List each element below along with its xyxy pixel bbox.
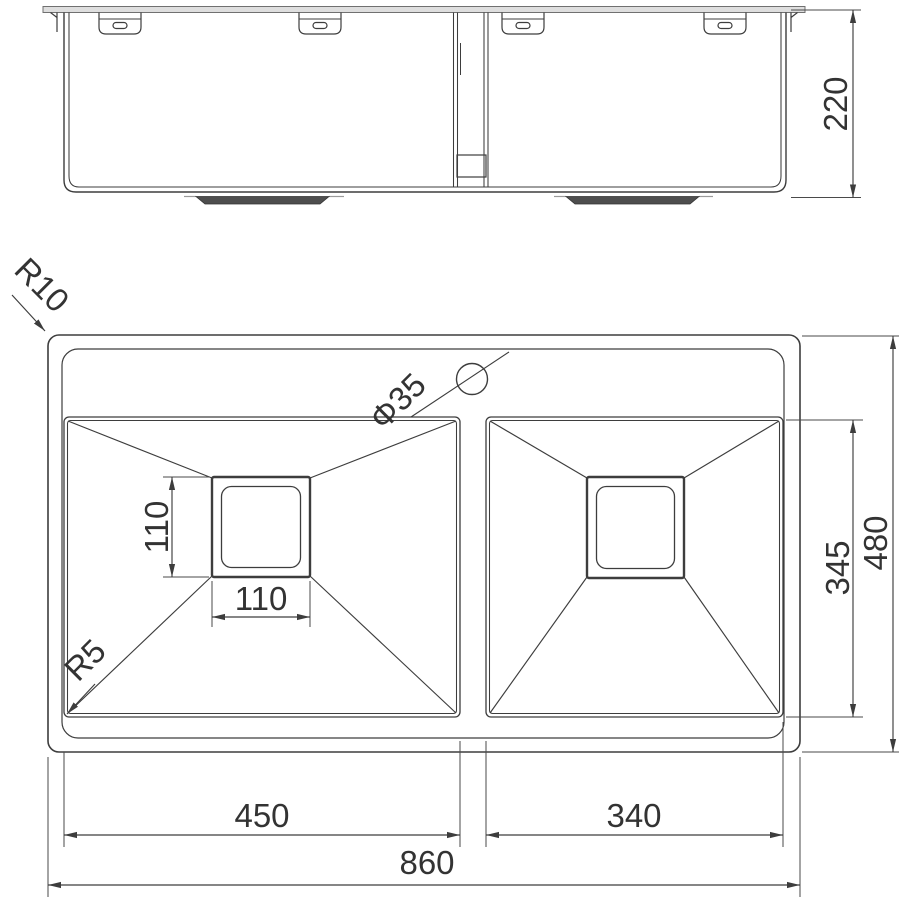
dim-label-220: 220 — [817, 76, 854, 131]
dim-label-450: 450 — [234, 797, 289, 834]
right-drain-boss — [554, 197, 713, 205]
sink-body-inner-wall — [69, 13, 781, 188]
plan-view: Φ35 R10 R5 110 110 — [8, 250, 899, 897]
dim-label-345: 345 — [819, 540, 856, 595]
dimension-depth-220: 220 — [791, 10, 861, 198]
left-drain-square — [212, 477, 310, 577]
left-drain-boss — [184, 197, 344, 205]
mounting-clip-3 — [502, 13, 544, 35]
bowl-divider — [454, 13, 489, 188]
mounting-clip-4 — [704, 13, 746, 35]
callout-outer-radius: R10 — [8, 250, 77, 331]
dimension-right-bowl-340: 340 — [486, 722, 783, 847]
left-rim-hook — [51, 13, 58, 33]
tap-hole: Φ35 — [362, 352, 509, 437]
label-outer-radius: R10 — [8, 250, 77, 319]
sink-body-outer-wall — [64, 13, 786, 193]
mounting-clip-1 — [99, 13, 141, 35]
dimension-drain-height-110: 110 — [138, 477, 209, 577]
dim-label-340: 340 — [606, 797, 661, 834]
right-drain-square — [587, 477, 684, 578]
dimension-overall-width-860: 860 — [48, 757, 800, 897]
right-bowl — [486, 417, 783, 717]
tap-hole-circle — [457, 364, 488, 395]
dim-label-110-h: 110 — [235, 580, 288, 617]
dimension-drain-width-110: 110 — [212, 580, 310, 627]
dim-label-860: 860 — [399, 844, 454, 881]
dim-label-110-v: 110 — [138, 501, 175, 554]
mounting-clip-2 — [299, 13, 341, 35]
dimension-left-bowl-450: 450 — [64, 741, 460, 847]
left-bowl — [64, 417, 460, 717]
technical-drawing-sheet: 220 — [0, 0, 900, 900]
label-tap-hole: Φ35 — [362, 366, 433, 437]
sink-drawing-svg: 220 — [0, 0, 900, 900]
callout-bowl-radius: R5 — [57, 632, 113, 714]
label-bowl-radius: R5 — [57, 632, 113, 688]
dim-label-480: 480 — [857, 515, 894, 570]
right-rim-hook — [791, 13, 798, 33]
dimension-bowl-depth-345: 345 — [786, 420, 863, 717]
front-elevation-view: 220 — [43, 7, 861, 205]
countertop-band — [43, 7, 805, 13]
